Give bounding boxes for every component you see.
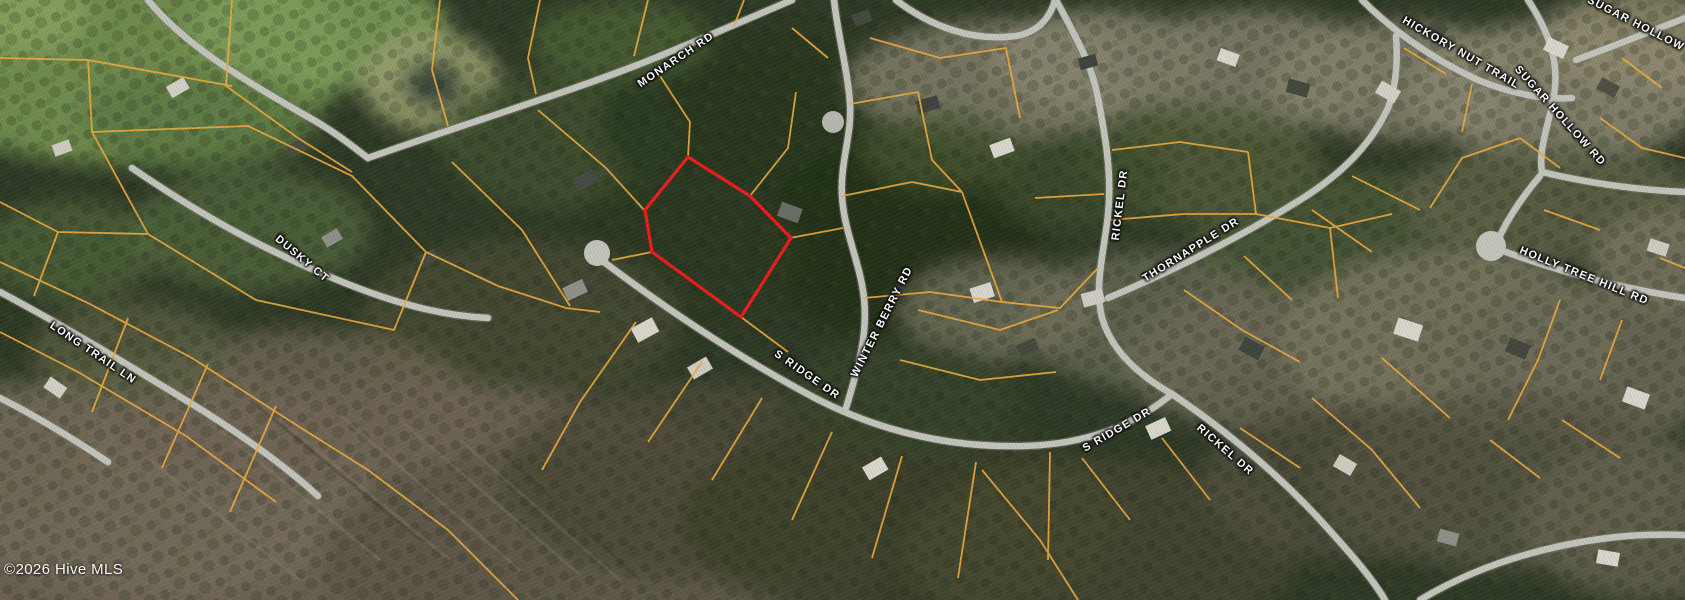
road-label: HOLLY TREE HILL RD [1518, 245, 1651, 308]
road-label: S RIDGE DR [1081, 406, 1154, 455]
road-label: SUGAR HOLLOW RD [1585, 0, 1685, 64]
road-label: THORNAPPLE DR [1140, 215, 1241, 284]
road-label: HICKORY NUT TRAIL [1400, 14, 1521, 91]
road-label: S RIDGE DR [772, 348, 842, 402]
copyright-watermark: ©2026 Hive MLS [4, 561, 123, 578]
road-label: SUGAR HOLLOW RD [1512, 64, 1608, 169]
road-label: MONARCH RD [636, 30, 717, 90]
aerial-map[interactable]: MONARCH RDDUSKY CTLONG TRAIL LNS RIDGE D… [0, 0, 1685, 600]
road-labels-layer: MONARCH RDDUSKY CTLONG TRAIL LNS RIDGE D… [0, 0, 1685, 600]
road-label: DUSKY CT [273, 233, 332, 285]
road-label: RICKEL DR [1194, 422, 1256, 478]
road-label: LONG TRAIL LN [48, 320, 139, 387]
road-label: RICKEL DR [1110, 169, 1131, 241]
road-label: WINTER BERRY RD [849, 265, 915, 380]
